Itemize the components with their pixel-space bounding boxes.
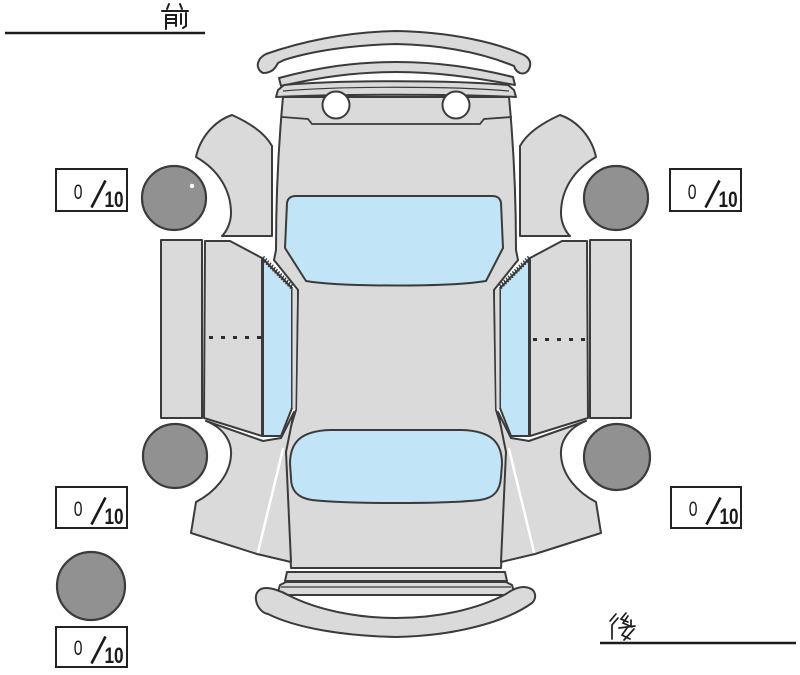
svg-text:10: 10: [105, 505, 124, 530]
svg-text:10: 10: [105, 188, 124, 213]
svg-text:0: 0: [689, 497, 698, 521]
svg-text:0: 0: [74, 180, 83, 204]
svg-text:0: 0: [688, 180, 697, 204]
svg-text:10: 10: [105, 644, 124, 669]
svg-text:10: 10: [719, 505, 738, 530]
svg-text:10: 10: [719, 188, 738, 213]
svg-text:0: 0: [74, 636, 83, 660]
svg-text:0: 0: [74, 497, 83, 521]
